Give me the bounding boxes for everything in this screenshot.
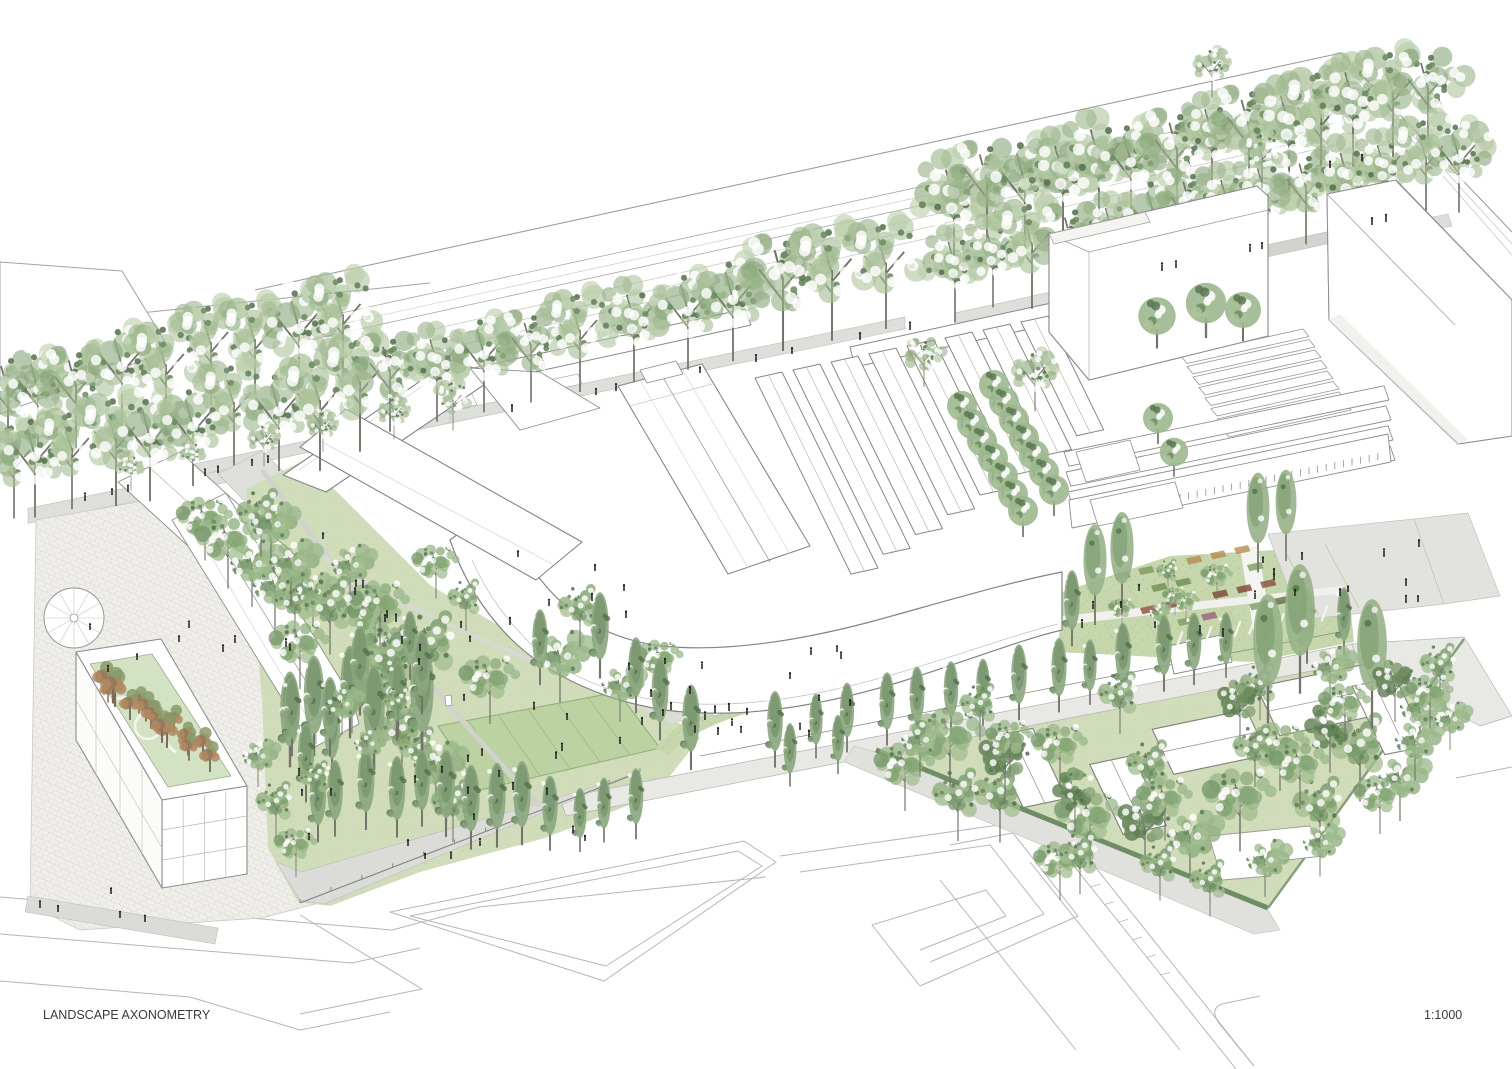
svg-text:LANDSCAPE AXONOMETRY: LANDSCAPE AXONOMETRY [43,1008,211,1022]
svg-text:1:1000: 1:1000 [1424,1008,1462,1022]
